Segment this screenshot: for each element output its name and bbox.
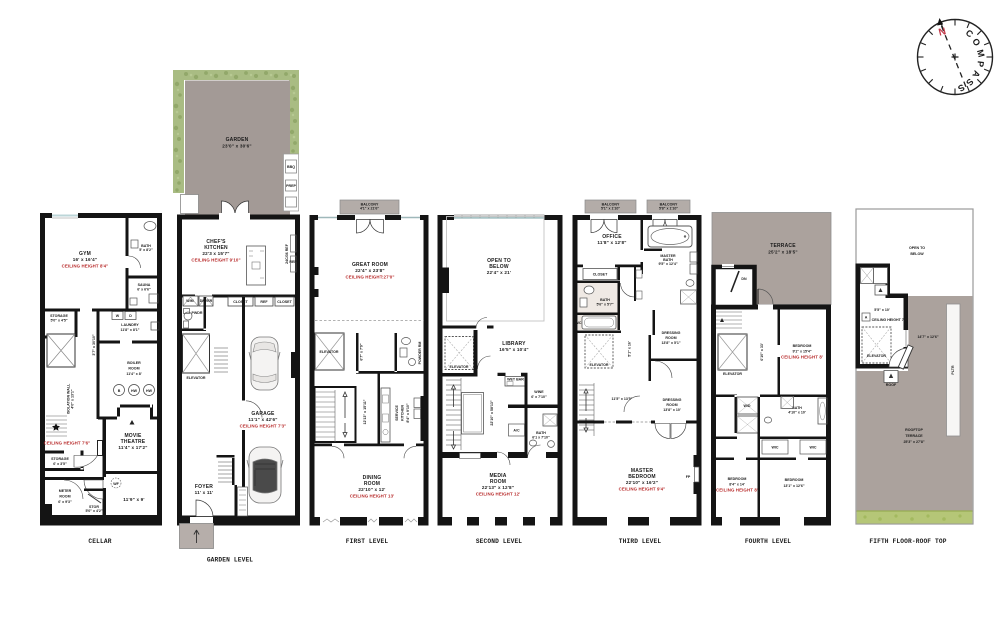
svg-text:SECOND LEVEL: SECOND LEVEL — [476, 538, 522, 545]
svg-text:3'7" x 30'10": 3'7" x 30'10" — [92, 334, 96, 355]
svg-text:CEILING HEIGHT 7'3": CEILING HEIGHT 7'3" — [240, 424, 287, 429]
svg-text:22'10" x 12': 22'10" x 12' — [358, 487, 385, 492]
svg-text:CEILING HEIGHT 8': CEILING HEIGHT 8' — [716, 488, 758, 493]
svg-text:22'3 x 15'7": 22'3 x 15'7" — [202, 251, 229, 256]
svg-text:WET BAR: WET BAR — [507, 378, 524, 382]
svg-text:POWDER RM: POWDER RM — [418, 342, 422, 365]
svg-text:6' x 3'5": 6' x 3'5" — [53, 462, 67, 466]
svg-text:5'1" x 16': 5'1" x 16' — [628, 341, 632, 357]
svg-text:THIRD LEVEL: THIRD LEVEL — [619, 538, 662, 545]
svg-text:9'1" x 15'4": 9'1" x 15'4" — [792, 350, 811, 354]
svg-text:22'10" x 16'2": 22'10" x 16'2" — [626, 480, 658, 485]
svg-text:ROOM: ROOM — [666, 403, 677, 407]
svg-text:CEILING HEIGHT 7'6": CEILING HEIGHT 7'6" — [872, 318, 909, 322]
svg-text:WC: WC — [576, 321, 582, 325]
svg-text:DN: DN — [741, 277, 747, 281]
svg-text:P: P — [975, 60, 986, 67]
svg-text:D: D — [129, 314, 132, 318]
svg-text:ROOF: ROOF — [886, 383, 897, 387]
svg-text:22'10" x 58'13": 22'10" x 58'13" — [490, 400, 494, 425]
svg-text:6' x 9'3": 6' x 9'3" — [58, 500, 72, 504]
svg-text:5'8" x 1'10": 5'8" x 1'10" — [659, 207, 678, 211]
svg-text:BBQ: BBQ — [287, 165, 295, 169]
svg-text:SAUNA: SAUNA — [138, 283, 151, 287]
svg-text:ROOM: ROOM — [665, 336, 676, 340]
svg-text:W: W — [116, 314, 120, 318]
svg-text:FIFTH FLOOR-ROOF TOP: FIFTH FLOOR-ROOF TOP — [869, 538, 946, 545]
svg-text:ELEVATOR: ELEVATOR — [187, 376, 206, 380]
svg-text:23'0" x 30'6": 23'0" x 30'6" — [222, 144, 252, 149]
svg-text:CLOSET: CLOSET — [593, 273, 608, 277]
svg-text:CEILING HEIGHT 8': CEILING HEIGHT 8' — [781, 355, 823, 360]
svg-text:ROOM: ROOM — [128, 367, 139, 371]
svg-text:CLOSET: CLOSET — [233, 300, 248, 304]
svg-text:4'1" x 21'6": 4'1" x 21'6" — [360, 207, 379, 211]
svg-text:GARDEN LEVEL: GARDEN LEVEL — [207, 557, 253, 564]
svg-text:CELLAR: CELLAR — [88, 538, 111, 545]
svg-text:DRESSING: DRESSING — [663, 398, 682, 402]
svg-text:5'5" x 10': 5'5" x 10' — [874, 308, 890, 312]
svg-text:22'4" x 21': 22'4" x 21' — [487, 270, 511, 275]
svg-text:BATH: BATH — [600, 298, 610, 302]
svg-text:6'1 x 7'10": 6'1 x 7'10" — [532, 436, 550, 440]
svg-text:BEDROOM: BEDROOM — [728, 477, 747, 481]
svg-text:14'7" x 12'6": 14'7" x 12'6" — [917, 335, 938, 339]
svg-text:ELEVATOR: ELEVATOR — [723, 372, 742, 376]
svg-text:PWDR: PWDR — [192, 311, 203, 315]
svg-text:8'4" x 14': 8'4" x 14' — [729, 483, 745, 487]
svg-text:5'0" x 4'5": 5'0" x 4'5" — [50, 319, 67, 323]
svg-text:W/D: W/D — [744, 404, 751, 408]
svg-text:WINE: WINE — [534, 390, 544, 394]
svg-text:11'8" x 8'1": 11'8" x 8'1" — [121, 328, 140, 332]
svg-text:12'13" x 15'11": 12'13" x 15'11" — [363, 399, 367, 424]
svg-text:CEILING HEIGHT 12': CEILING HEIGHT 12' — [476, 492, 521, 497]
svg-text:25'2" x 18'5": 25'2" x 18'5" — [768, 250, 798, 255]
svg-text:ROOM: ROOM — [59, 495, 70, 499]
svg-text:HW: HW — [131, 389, 138, 393]
svg-text:LAUNDRY: LAUNDRY — [121, 323, 139, 327]
svg-text:22'4" x 23'8": 22'4" x 23'8" — [355, 268, 385, 273]
svg-text:5'0" x 4'2": 5'0" x 4'2" — [85, 509, 102, 513]
svg-text:ELEVATOR: ELEVATOR — [867, 354, 886, 358]
svg-text:CEILING HEIGHT:27'0": CEILING HEIGHT:27'0" — [345, 275, 394, 280]
svg-text:TERRACE: TERRACE — [770, 243, 796, 249]
svg-text:11'8" x 12'8": 11'8" x 12'8" — [597, 240, 626, 245]
svg-text:CEILING HEIGHT 8'4": CEILING HEIGHT 8'4" — [62, 264, 109, 269]
svg-text:GARDEN: GARDEN — [226, 137, 249, 143]
svg-text:25'3" x 27'8": 25'3" x 27'8" — [903, 440, 924, 444]
svg-text:16' x 16'4": 16' x 16'4" — [73, 257, 97, 262]
svg-text:11' x 11': 11' x 11' — [195, 490, 214, 495]
svg-text:WF: WF — [113, 482, 119, 486]
svg-text:24C/36 REF: 24C/36 REF — [285, 243, 289, 264]
svg-text:11'5" x 13'5": 11'5" x 13'5" — [612, 397, 633, 401]
svg-text:STORAGE: STORAGE — [50, 314, 68, 318]
svg-text:CLOSET: CLOSET — [277, 300, 292, 304]
svg-text:5' x 8'2": 5' x 8'2" — [139, 248, 153, 252]
svg-text:PREP: PREP — [286, 184, 296, 188]
svg-text:PLTR: PLTR — [951, 365, 955, 375]
svg-text:5'6" x 5'7": 5'6" x 5'7" — [596, 303, 613, 307]
svg-text:A/C: A/C — [513, 429, 520, 433]
svg-text:HW: HW — [146, 389, 153, 393]
svg-text:ELEVATOR: ELEVATOR — [450, 365, 469, 369]
svg-text:B: B — [118, 389, 121, 393]
svg-text:KITCHEN: KITCHEN — [401, 405, 405, 421]
svg-text:9'5" x 12'4": 9'5" x 12'4" — [658, 262, 677, 266]
svg-text:STORAGE: STORAGE — [51, 457, 69, 461]
svg-text:13'8" x 10': 13'8" x 10' — [663, 408, 681, 412]
svg-text:CEILING HEIGHT 9'10": CEILING HEIGHT 9'10" — [191, 258, 240, 263]
svg-text:BEDROOM: BEDROOM — [793, 344, 812, 348]
svg-text:FIRST LEVEL: FIRST LEVEL — [346, 538, 389, 545]
svg-text:16'5" x 10'4": 16'5" x 10'4" — [499, 347, 529, 352]
svg-text:ELEVATOR: ELEVATOR — [320, 350, 339, 354]
svg-text:6' x 6'6": 6' x 6'6" — [137, 288, 151, 292]
svg-text:REF: REF — [260, 300, 268, 304]
svg-text:6'10" x 33': 6'10" x 33' — [760, 343, 764, 361]
svg-text:METER: METER — [59, 489, 72, 493]
svg-text:TERRACE: TERRACE — [905, 434, 923, 438]
svg-text:BEDROOM: BEDROOM — [785, 478, 804, 482]
svg-text:FOURTH LEVEL: FOURTH LEVEL — [745, 538, 791, 545]
svg-text:CEILING HEIGHT 7'6": CEILING HEIGHT 7'6" — [44, 441, 91, 446]
svg-text:REF: REF — [289, 260, 297, 264]
svg-text:OPEN TO: OPEN TO — [909, 246, 925, 250]
svg-text:FP: FP — [686, 475, 691, 479]
svg-text:11'1" x 42'6": 11'1" x 42'6" — [248, 417, 277, 422]
svg-text:6' x 7'10": 6' x 7'10" — [531, 395, 547, 399]
svg-text:5'1" x 1'10": 5'1" x 1'10" — [601, 207, 620, 211]
svg-text:11'4" x 17'2": 11'4" x 17'2" — [118, 445, 147, 450]
svg-text:DRYER: DRYER — [200, 299, 213, 303]
svg-text:A: A — [865, 316, 868, 320]
svg-text:ROOFTOP: ROOFTOP — [905, 428, 923, 432]
svg-text:4'10" x 10': 4'10" x 10' — [788, 411, 806, 415]
svg-text:11'4" x 8': 11'4" x 8' — [126, 372, 141, 376]
svg-text:BATH: BATH — [536, 431, 546, 435]
svg-text:DRESSING: DRESSING — [662, 331, 681, 335]
svg-text:BELOW: BELOW — [910, 252, 924, 256]
svg-text:WIC: WIC — [772, 446, 779, 450]
svg-text:6'7" x 7'9": 6'7" x 7'9" — [360, 343, 364, 360]
svg-text:13'8" x 5'1": 13'8" x 5'1" — [661, 341, 680, 345]
svg-text:W/M: W/M — [186, 299, 193, 303]
svg-text:22'13" x 12'8": 22'13" x 12'8" — [482, 485, 514, 490]
svg-text:BOILER: BOILER — [127, 361, 141, 365]
svg-text:CEILING HEIGHT 13': CEILING HEIGHT 13' — [350, 494, 395, 499]
svg-text:4'0" x 13'1": 4'0" x 13'1" — [71, 389, 75, 408]
svg-text:SERVICE: SERVICE — [395, 405, 399, 421]
svg-text:8'4" x 9'10": 8'4" x 9'10" — [406, 403, 410, 422]
svg-text:CEILING HEIGHT 9'4": CEILING HEIGHT 9'4" — [619, 487, 666, 492]
svg-text:11'9" x 9': 11'9" x 9' — [123, 497, 144, 502]
svg-text:WIC: WIC — [810, 446, 817, 450]
svg-text:13'1" x 12'6": 13'1" x 12'6" — [783, 484, 804, 488]
svg-text:ELEVATOR: ELEVATOR — [590, 363, 609, 367]
